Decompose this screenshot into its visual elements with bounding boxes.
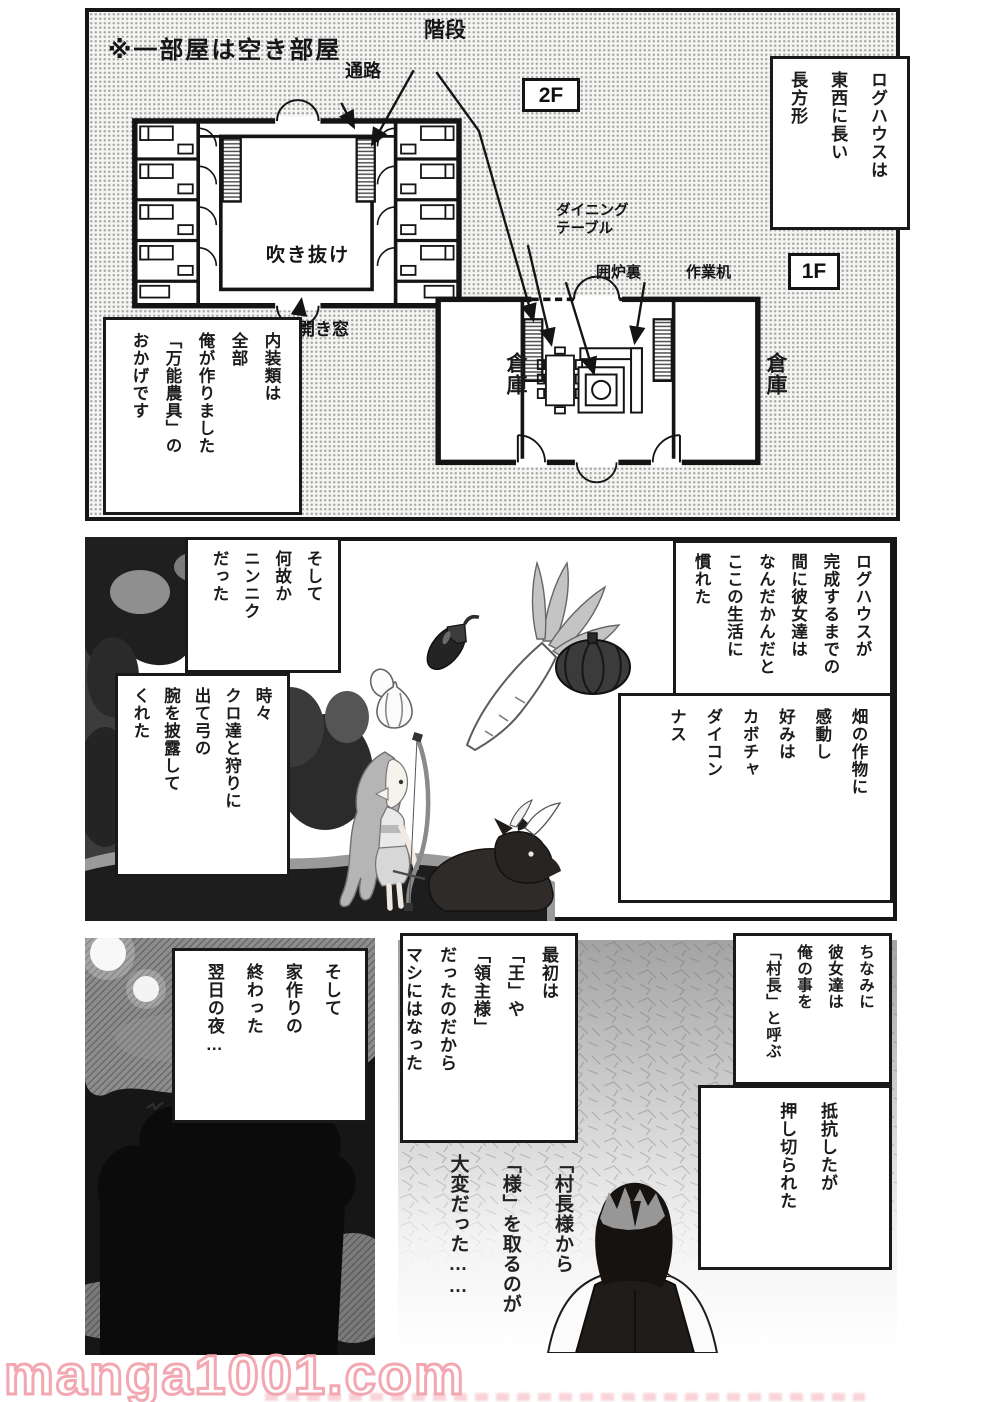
label-storage-left: 倉庫: [505, 352, 526, 396]
eggplant: [420, 604, 485, 676]
caption-crops: 畑の作物に 感動し 好みは カボチャ ダイコン ナス: [618, 693, 893, 903]
caption-interior: 内装類は 全部 俺が作りました 「万能農具」の おかげです: [103, 317, 302, 515]
horned-wolf: [429, 800, 561, 911]
stairs-2f-right: [357, 138, 375, 201]
note-vacant-room: ※一部屋は空き部屋: [108, 30, 341, 65]
cropped-pink-text-strip: [265, 1393, 865, 1401]
stairs-1f-right: [654, 319, 672, 381]
label-dining-table: ダイニング テーブル: [556, 202, 629, 238]
caption-night: そして 家作りの 終わった 翌日の夜…: [172, 948, 368, 1123]
label-stairs: 階段: [424, 14, 466, 44]
caption-loghouse-shape: ログハウスは 東西に長い 長方形: [770, 56, 910, 230]
caption-garlic: そして 何故か ニンニク だった: [185, 537, 341, 673]
label-corridor: 通路: [345, 57, 381, 83]
label-work-desk: 作業机: [686, 261, 731, 282]
plan-2f: [135, 100, 459, 326]
caption-chief: ちなみに 彼女達は 俺の事を 「村長」と呼ぶ: [733, 933, 892, 1085]
caption-title-better: 最初は 「王」や 「領主様」 だったのだから マシにはなった: [400, 933, 578, 1143]
stairs-2f-left: [223, 138, 241, 201]
handwritten-mutter: 「村長様から 「様」を取るのが 大変だった……: [428, 1154, 588, 1324]
label-window: 開き窓: [298, 315, 349, 340]
irori-hearth: [579, 367, 624, 412]
caption-resist: 抵抗したが 押し切られた: [698, 1085, 892, 1270]
caption-hunting: 時々 クロ達と狩りに 出て弓の 腕を披露して くれた: [115, 673, 290, 877]
label-2f: 2F: [522, 78, 580, 112]
label-storage-right: 倉庫: [765, 352, 786, 396]
caption-adapt: ログハウスが 完成するまでの 間に彼女達は なんだかんだと ここの生活に 慣れた: [673, 540, 893, 697]
moon-large: [90, 935, 126, 971]
label-atrium: 吹き抜け: [266, 240, 350, 267]
label-hearth: 囲炉裏: [596, 261, 641, 282]
plan-1f: [438, 277, 758, 483]
moon-small: [133, 976, 159, 1002]
wolf-horn: [525, 803, 560, 835]
label-1f: 1F: [788, 253, 840, 290]
garlic: [367, 666, 412, 728]
manga-page: ※一部屋は空き部屋 階段 通路 吹き抜け 開き窓 ダイニング テーブル 囲炉裏 …: [0, 0, 990, 1402]
